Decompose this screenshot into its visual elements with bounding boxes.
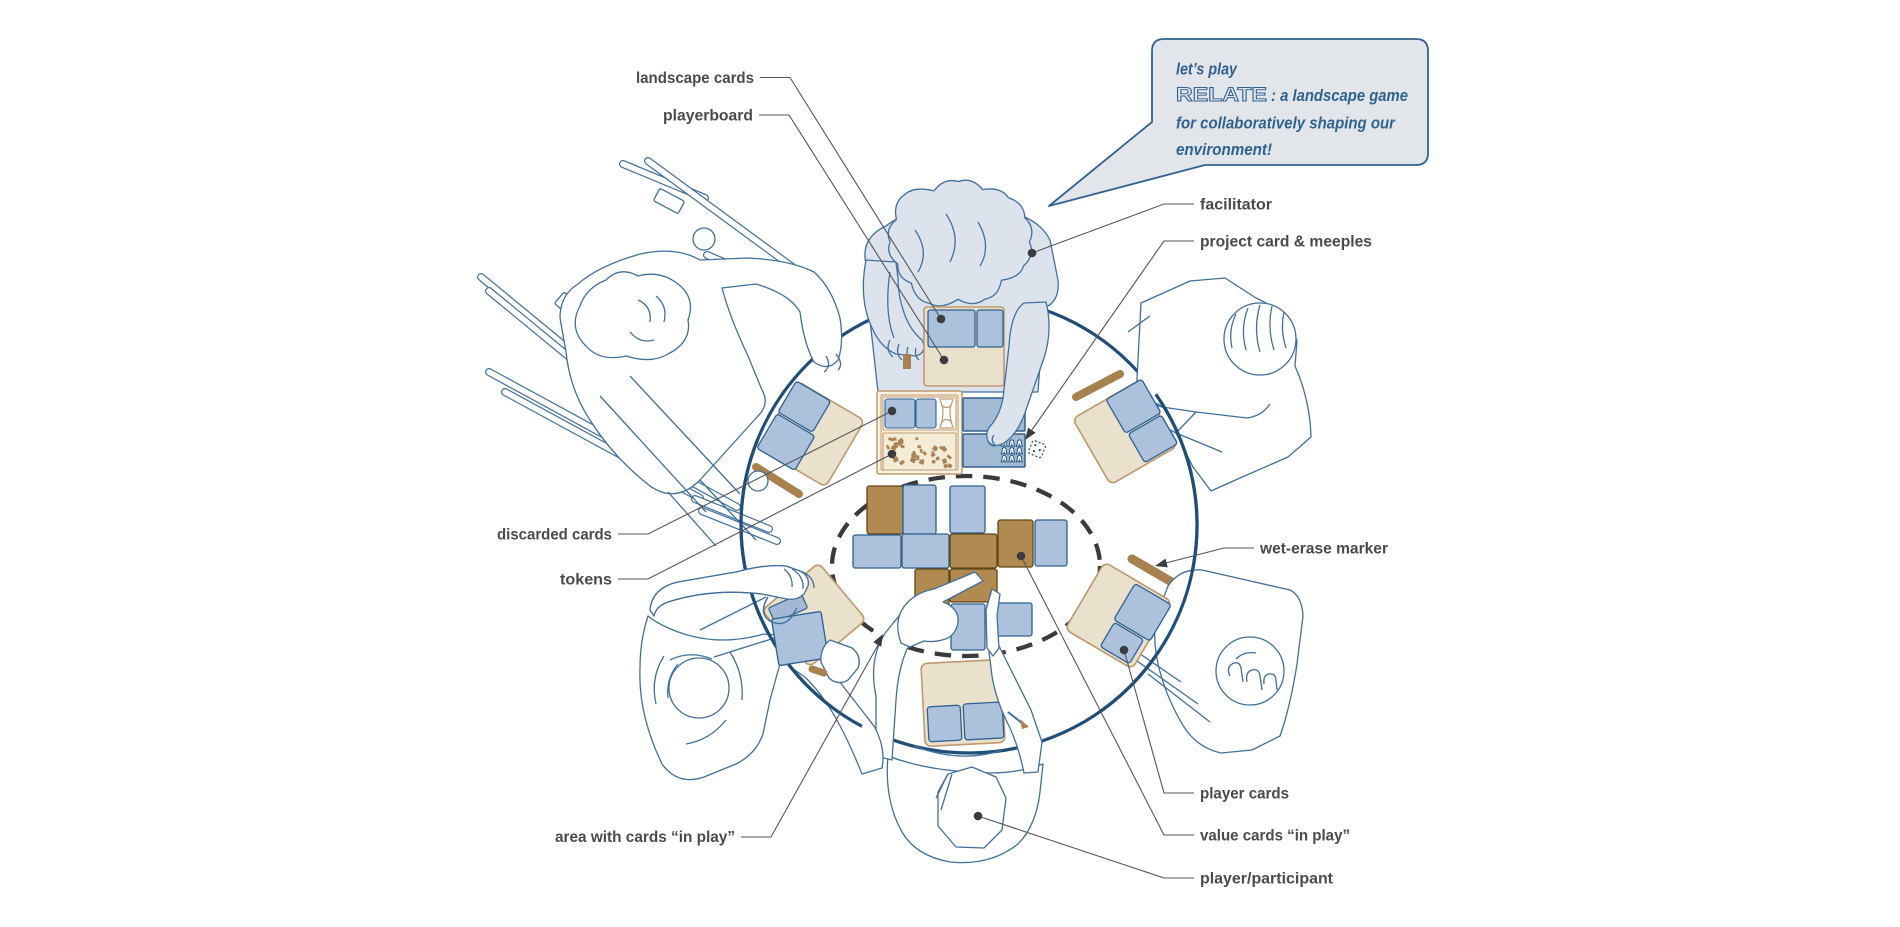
- svg-text:tokens: tokens: [560, 572, 612, 589]
- svg-text:environment!: environment!: [1176, 140, 1272, 159]
- svg-text:wet-erase marker: wet-erase marker: [1259, 541, 1388, 558]
- svg-text:for collaboratively shaping ou: for collaboratively shaping our: [1176, 114, 1396, 133]
- svg-text:let’s play: let’s play: [1176, 60, 1238, 79]
- svg-text:: a landscape game: : a landscape game: [1271, 86, 1408, 105]
- svg-text:facilitator: facilitator: [1200, 197, 1272, 214]
- svg-text:area with cards “in play”: area with cards “in play”: [555, 829, 735, 846]
- svg-text:value cards “in play”: value cards “in play”: [1200, 828, 1350, 845]
- svg-text:player cards: player cards: [1200, 786, 1289, 803]
- svg-text:playerboard: playerboard: [663, 108, 753, 125]
- svg-text:RELATE: RELATE: [1176, 85, 1267, 106]
- svg-text:player/participant: player/participant: [1200, 871, 1334, 888]
- svg-text:project card & meeples: project card & meeples: [1200, 234, 1372, 251]
- svg-text:landscape cards: landscape cards: [636, 70, 754, 87]
- svg-text:discarded cards: discarded cards: [497, 527, 612, 544]
